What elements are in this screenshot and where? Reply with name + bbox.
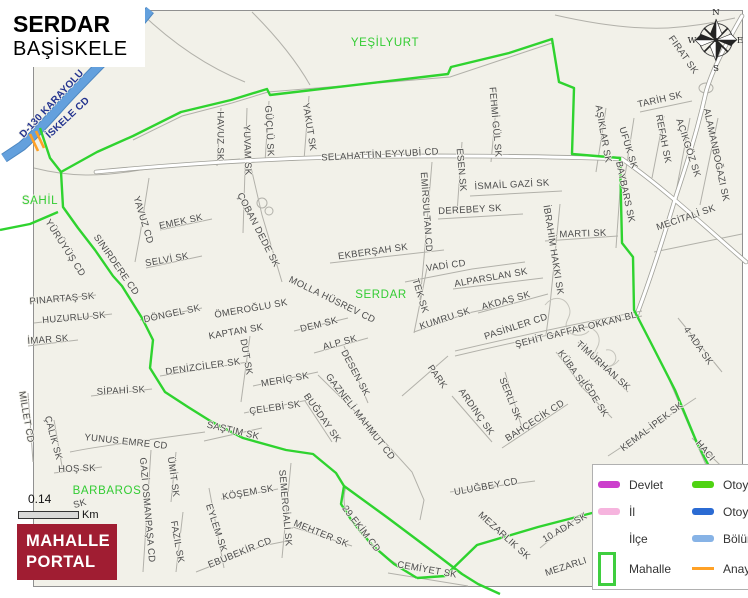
legend-swatch (598, 508, 620, 515)
compass-w-label: W (688, 36, 697, 46)
scale-control: 0.14 Km (18, 492, 99, 524)
legend-swatch (692, 508, 714, 515)
legend-item-label: İl (629, 505, 685, 519)
map-legend: DevletOtoyol-YİDİlOtoyolİlçeBölünmüş YMa… (592, 464, 748, 590)
title-box: SERDAR BAŞİSKELE (0, 0, 145, 67)
legend-swatch (692, 535, 714, 542)
district-title: SERDAR (13, 12, 131, 37)
scale-bar (18, 511, 79, 519)
scale-value: 0.14 (28, 492, 99, 506)
mahalle-portal-logo[interactable]: MAHALLE PORTAL (17, 524, 117, 580)
compass-s-label: S (713, 64, 719, 74)
legend-item-label: Anayol (723, 562, 748, 576)
legend-item-label: Mahalle (629, 562, 685, 576)
municipality-title: BAŞİSKELE (13, 37, 131, 61)
scale-unit: Km (82, 509, 99, 521)
legend-swatch (598, 535, 620, 542)
legend-item-label: Otoyol (723, 505, 748, 519)
logo-line2: PORTAL (26, 552, 117, 573)
legend-swatch (598, 552, 616, 586)
legend-item-label: Bölünmüş Y (723, 532, 748, 546)
legend-item-label: Otoyol-YİD (723, 478, 748, 492)
legend-swatch (692, 567, 714, 570)
compass-n-label: N (712, 8, 720, 18)
legend-swatch (692, 481, 714, 488)
logo-line1: MAHALLE (26, 531, 117, 552)
legend-item-label: İlçe (629, 532, 685, 546)
legend-swatch (598, 481, 620, 488)
legend-item-label: Devlet (629, 478, 685, 492)
compass-e-label: E (737, 36, 743, 46)
map-page: { "title": {"district_name": "SERDAR", "… (0, 0, 748, 598)
